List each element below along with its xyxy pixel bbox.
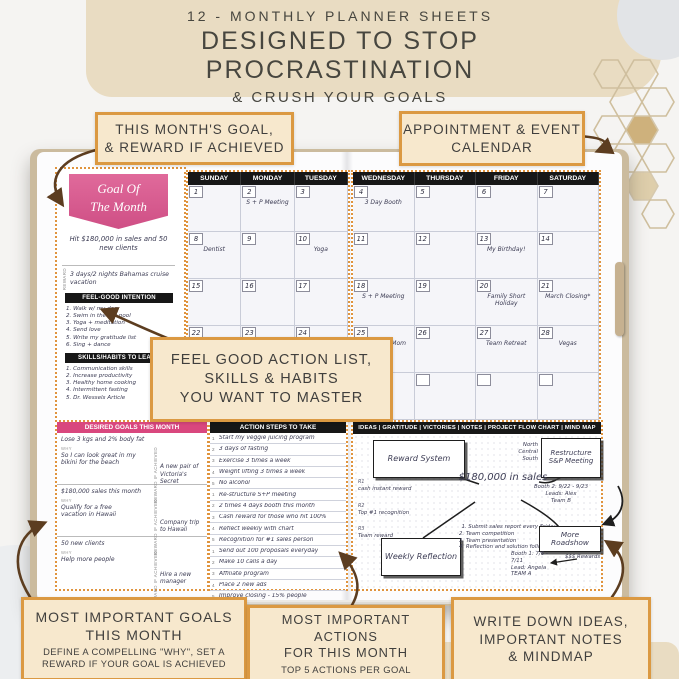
callout-line: FEEL GOOD ACTION LIST, <box>153 351 390 370</box>
callout-line: IMPORTANT NOTES <box>454 631 648 649</box>
action-number: 1 <box>212 549 219 554</box>
calendar-cell: 19 <box>415 279 477 326</box>
elastic-band <box>615 262 624 336</box>
action-text: Affiliate program <box>219 571 269 577</box>
ribbon-title-2: The Month <box>69 199 168 215</box>
calendar-cell: 11 <box>353 232 415 279</box>
day-number: 12 <box>416 233 430 245</box>
day-event: March Closing* <box>539 294 598 301</box>
action-row: 5No alcohol <box>210 478 346 489</box>
calendar-cell: 15 <box>188 279 241 326</box>
feel-good-title: FEEL-GOOD INTENTION <box>65 293 173 303</box>
reward-text: Hire a new manager <box>160 572 205 586</box>
action-row: 1Start my veggie juicing program <box>210 433 346 444</box>
mindmap-center-goal: $180,000 in sales <box>447 472 559 483</box>
calendar-cell: 13My Birthday! <box>476 232 538 279</box>
action-number: 5 <box>212 481 219 486</box>
day-number: 20 <box>477 280 491 292</box>
action-steps-title: ACTION STEPS TO TAKE <box>210 422 346 433</box>
mindmap-title: IDEAS | GRATITUDE | VICTORIES | NOTES | … <box>353 422 601 434</box>
mindmap-box-more-roadshow: More Roadshow <box>539 526 601 552</box>
calendar-cell: 26 <box>415 326 477 373</box>
day-header: SUNDAY <box>188 172 241 185</box>
action-number: 4 <box>212 583 219 588</box>
day-number <box>539 374 553 386</box>
callout-important-actions: MOST IMPORTANT ACTIONS FOR THIS MONTH TO… <box>247 605 445 679</box>
day-number: 17 <box>296 280 310 292</box>
day-number: 7 <box>539 186 553 198</box>
calendar-cell <box>415 373 477 420</box>
booth1-note: Booth 1: 7/6 - 7/11 Lead: Angela TEAM A <box>511 551 559 578</box>
action-row: 1Send out 100 proposals everyday <box>210 546 346 557</box>
day-event: S + P Meeting <box>242 200 292 207</box>
day-number: 16 <box>242 280 256 292</box>
action-row: 5Recognition for #1 sales person <box>210 535 346 546</box>
action-row: 4Reflect weekly with chart <box>210 523 346 534</box>
day-event: Vegas <box>539 341 598 348</box>
day-header: TUESDAY <box>295 172 348 185</box>
callout-line: & REWARD IF ACHIEVED <box>98 139 291 157</box>
day-event: S + P Meeting <box>354 294 413 301</box>
day-number: 15 <box>189 280 203 292</box>
action-row: 2Make 10 calls a day <box>210 557 346 568</box>
day-number: 10 <box>296 233 310 245</box>
action-number: 1 <box>212 492 219 497</box>
action-row: 3Exercise 3 times a week <box>210 456 346 467</box>
callout-write-ideas: WRITE DOWN IDEAS, IMPORTANT NOTES & MIND… <box>451 597 651 679</box>
action-row: 3Affiliate program <box>210 569 346 580</box>
callout-subline: TOP 5 ACTIONS PER GOAL <box>250 664 442 676</box>
list-item: 1. Walk w/ my dog <box>66 306 186 313</box>
action-number: 3 <box>212 571 219 576</box>
calendar-cell: 43 Day Booth <box>353 185 415 232</box>
callout-subline: DEFINE A COMPELLING "WHY", SET A <box>24 646 244 658</box>
mindmap-box-weekly-reflection: Weekly Reflection <box>381 538 461 576</box>
day-number: 19 <box>416 280 430 292</box>
action-text: Exercise 3 times a week <box>219 458 291 464</box>
action-row: 3Cash reward for those who hit 100% <box>210 512 346 523</box>
action-row: 4Place 2 new ads <box>210 580 346 591</box>
rewards-note: $$$ Rewards <box>565 554 600 561</box>
calendar-cell: 18S + P Meeting <box>353 279 415 326</box>
title-line-3: & CRUSH YOUR GOALS <box>110 89 570 106</box>
day-header: MONDAY <box>241 172 294 185</box>
month-reward-row: REWARD 3 days/2 nights Bahamas cruise va… <box>62 268 175 290</box>
list-item: 4. Send love <box>66 327 186 334</box>
action-text: 3 days of fasting <box>219 446 268 452</box>
calendar-cell: 1 <box>188 185 241 232</box>
month-goal-text: Hit $180,000 in sales and 50 new clients <box>63 235 174 253</box>
desired-goals-panel: DESIRED GOALS THIS MONTH Lose 3 kgs and … <box>55 420 209 591</box>
day-event: My Birthday! <box>477 247 536 254</box>
action-text: Weight lifting 3 times a week <box>219 469 305 475</box>
booth-line: TEAM A <box>511 571 559 578</box>
action-text: Recognition for #1 sales person <box>219 537 313 543</box>
action-row: 23 days of fasting <box>210 444 346 455</box>
region: North <box>511 442 538 449</box>
booth-line: Booth 1: 7/6 - 7/11 <box>511 551 559 565</box>
action-text: Cash reward for those who hit 100% <box>219 514 327 520</box>
desired-goals-title: DESIRED GOALS THIS MONTH <box>57 422 207 433</box>
calendar-cell: 12 <box>415 232 477 279</box>
callout-line: & MINDMAP <box>454 648 648 666</box>
booth-line: Booth 2: 9/22 - 9/23 <box>525 484 597 491</box>
day-number: 28 <box>539 327 553 339</box>
action-number: 3 <box>212 458 219 463</box>
day-number: 18 <box>354 280 368 292</box>
title-line-2: DESIGNED TO STOP PROCRASTINATION <box>110 27 570 85</box>
goal-text: Lose 3 kgs and 2% body fat <box>61 436 203 444</box>
day-number: 11 <box>354 233 368 245</box>
goal-block: 50 new clients WHY Help more people REWA… <box>57 537 207 588</box>
booth-line: Leads: Alex <box>525 491 597 498</box>
calendar-cell: 9 <box>241 232 294 279</box>
action-row: 4Weight lifting 3 times a week <box>210 467 346 478</box>
callout-line: MOST IMPORTANT ACTIONS <box>250 612 442 645</box>
callout-appointment-calendar: APPOINTMENT & EVENT CALENDAR <box>399 111 585 166</box>
calendar-cell: 5 <box>415 185 477 232</box>
day-number: 2 <box>242 186 256 198</box>
action-number: 5 <box>212 537 219 542</box>
day-event: Yoga <box>296 247 346 254</box>
day-number: 9 <box>242 233 256 245</box>
booth2-note: Booth 2: 9/22 - 9/23 Leads: Alex Team B <box>525 484 597 504</box>
action-number: 2 <box>212 447 219 452</box>
page-title: 12 - MONTHLY PLANNER SHEETS DESIGNED TO … <box>110 8 570 106</box>
calendar-cell: 21March Closing* <box>538 279 600 326</box>
day-number: 8 <box>189 233 203 245</box>
action-number: 1 <box>212 436 219 441</box>
day-header: FRIDAY <box>476 172 538 185</box>
r-note: R1cash instant reward <box>358 480 411 493</box>
action-text: Start my veggie juicing program <box>219 435 315 441</box>
goal-text: 50 new clients <box>61 540 203 548</box>
action-row: 1Re-structure S+P meeting <box>210 489 346 500</box>
day-number: 13 <box>477 233 491 245</box>
list-item: 3. Yoga + meditation <box>66 320 186 327</box>
day-event: Team Retreat <box>477 341 536 348</box>
action-text: Re-structure S+P meeting <box>219 492 296 498</box>
action-row: 22 times 4 days booth this month <box>210 501 346 512</box>
callout-line: WRITE DOWN IDEAS, <box>454 613 648 631</box>
callout-line: THIS MONTH <box>24 626 244 644</box>
action-number: 2 <box>212 503 219 508</box>
day-number: 5 <box>416 186 430 198</box>
goal-text: $180,000 sales this month <box>61 488 203 496</box>
why-text: Qualify for a free vacation in Hawaii <box>61 504 139 519</box>
calendar-cell: 2S + P Meeting <box>241 185 294 232</box>
action-text: Place 2 new ads <box>219 582 267 588</box>
calendar-cell: 6 <box>476 185 538 232</box>
list-item: 2. Swim in the hot pool <box>66 313 186 320</box>
reward-text: Company trip to Hawaii <box>160 520 205 534</box>
calendar-cell: 8Dentist <box>188 232 241 279</box>
calendar-cell: 20Family Short Holiday <box>476 279 538 326</box>
product-image: 12 - MONTHLY PLANNER SHEETS DESIGNED TO … <box>0 0 679 679</box>
day-number: 1 <box>189 186 203 198</box>
calendar-right-header: WEDNESDAY THURSDAY FRIDAY SATURDAY <box>353 172 599 185</box>
reward-text: A new pair of Victoria's Secret <box>160 464 205 486</box>
action-number: 3 <box>212 515 219 520</box>
why-text: So I can look great in my bikini for the… <box>61 452 139 467</box>
callout-feel-good: FEEL GOOD ACTION LIST, SKILLS & HABITS Y… <box>150 337 393 422</box>
action-number: 4 <box>212 470 219 475</box>
callout-important-goals: MOST IMPORTANT GOALS THIS MONTH DEFINE A… <box>21 597 247 679</box>
action-steps-panel: ACTION STEPS TO TAKE 1Start my veggie ju… <box>208 420 348 591</box>
calendar-cell <box>476 373 538 420</box>
reward-label: REWARD <box>62 268 67 290</box>
region: Central <box>511 449 538 456</box>
action-text: Make 10 calls a day <box>219 559 277 565</box>
calendar-cell: 14 <box>538 232 600 279</box>
day-event: Family Short Holiday <box>477 294 536 308</box>
day-number: 26 <box>416 327 430 339</box>
day-number: 21 <box>539 280 553 292</box>
ribbon-title-1: Goal Of <box>69 181 168 197</box>
r-note: R2Top #1 recognition <box>358 504 409 517</box>
action-text: 2 times 4 days booth this month <box>219 503 315 509</box>
month-reward-text: 3 days/2 nights Bahamas cruise vacation <box>70 271 175 287</box>
day-number <box>477 374 491 386</box>
day-number: 3 <box>296 186 310 198</box>
booth-line: Lead: Angela <box>511 565 559 572</box>
action-number: 4 <box>212 526 219 531</box>
goal-of-month-ribbon: Goal Of The Month <box>69 174 168 229</box>
action-text: Reflect weekly with chart <box>219 526 294 532</box>
day-header: THURSDAY <box>415 172 477 185</box>
action-number: 2 <box>212 560 219 565</box>
callout-line: FOR THIS MONTH <box>250 645 442 662</box>
calendar-cell: 7 <box>538 185 600 232</box>
callout-line: SKILLS & HABITS <box>153 370 390 389</box>
callout-line: APPOINTMENT & EVENT <box>402 121 582 139</box>
goal-block: Lose 3 kgs and 2% body fat WHY So I can … <box>57 433 207 485</box>
why-text: Help more people <box>61 556 139 564</box>
calendar-cell: 3 <box>295 185 348 232</box>
action-text: No alcohol <box>219 480 250 486</box>
region-labels: North Central South <box>511 442 538 462</box>
day-number: 27 <box>477 327 491 339</box>
region: South <box>511 456 538 463</box>
day-header: WEDNESDAY <box>353 172 415 185</box>
callout-line: THIS MONTH'S GOAL, <box>98 121 291 139</box>
divider <box>62 265 175 266</box>
day-event: 3 Day Booth <box>354 200 413 207</box>
r-note-text: Top #1 recognition <box>358 510 409 516</box>
day-number: 6 <box>477 186 491 198</box>
goal-block: $180,000 sales this month WHY Qualify fo… <box>57 485 207 537</box>
day-header: SATURDAY <box>538 172 600 185</box>
day-event: Dentist <box>189 247 239 254</box>
calendar-cell: 10Yoga <box>295 232 348 279</box>
day-number: 4 <box>354 186 368 198</box>
calendar-left-header: SUNDAY MONDAY TUESDAY <box>188 172 348 185</box>
callout-month-goal: THIS MONTH'S GOAL, & REWARD IF ACHIEVED <box>95 112 294 165</box>
mindmap-panel: IDEAS | GRATITUDE | VICTORIES | NOTES | … <box>351 420 603 591</box>
calendar-cell: 16 <box>241 279 294 326</box>
r-note-text: cash instant reward <box>358 486 411 492</box>
callout-line: MOST IMPORTANT GOALS <box>24 608 244 626</box>
calendar-cell: 28Vegas <box>538 326 600 373</box>
callout-subline: REWARD IF YOUR GOAL IS ACHIEVED <box>24 658 244 670</box>
title-line-1: 12 - MONTHLY PLANNER SHEETS <box>110 8 570 24</box>
calendar-cell: 17 <box>295 279 348 326</box>
calendar-cell <box>538 373 600 420</box>
callout-line: CALENDAR <box>402 139 582 157</box>
action-text: Send out 100 proposals everyday <box>219 548 318 554</box>
booth-line: Team B <box>525 498 597 505</box>
calendar-cell: 27Team Retreat <box>476 326 538 373</box>
callout-line: YOU WANT TO MASTER <box>153 389 390 408</box>
day-number: 14 <box>539 233 553 245</box>
day-number <box>416 374 430 386</box>
